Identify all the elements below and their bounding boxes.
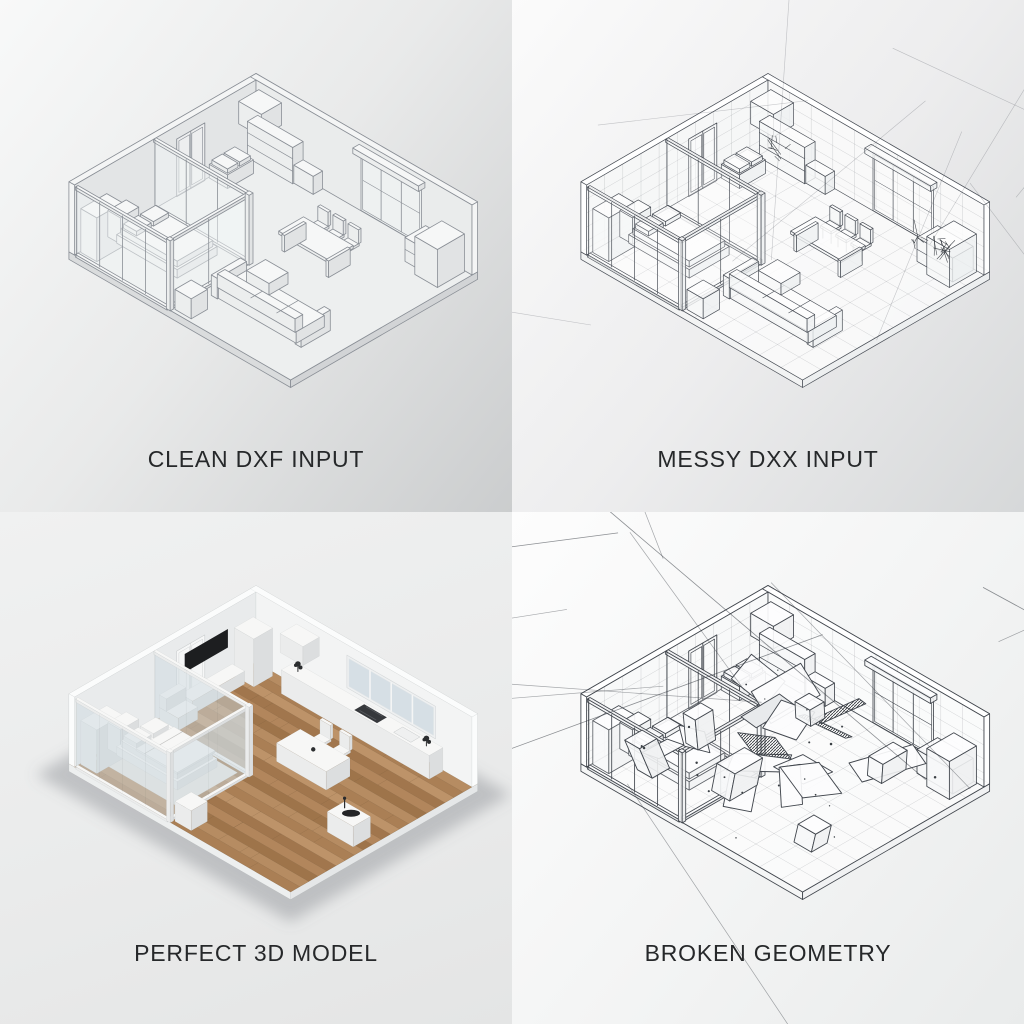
messy-room-illustration (512, 0, 1024, 512)
panel-clean-dxf-input: CLEAN DXF INPUT (0, 0, 512, 512)
panel-messy-dxx-input: MESSY DXX INPUT (512, 0, 1024, 512)
comparison-grid: CLEAN DXF INPUT MESSY DXX INPUT PERFECT … (0, 0, 1024, 1024)
panel-broken-geometry: BROKEN GEOMETRY (512, 512, 1024, 1024)
panel-perfect-3d-model: PERFECT 3D MODEL (0, 512, 512, 1024)
clean-room-illustration (0, 0, 512, 512)
panel-caption: CLEAN DXF INPUT (0, 446, 512, 473)
panel-caption: MESSY DXX INPUT (512, 446, 1024, 473)
panel-caption: PERFECT 3D MODEL (0, 940, 512, 967)
panel-caption: BROKEN GEOMETRY (512, 940, 1024, 967)
